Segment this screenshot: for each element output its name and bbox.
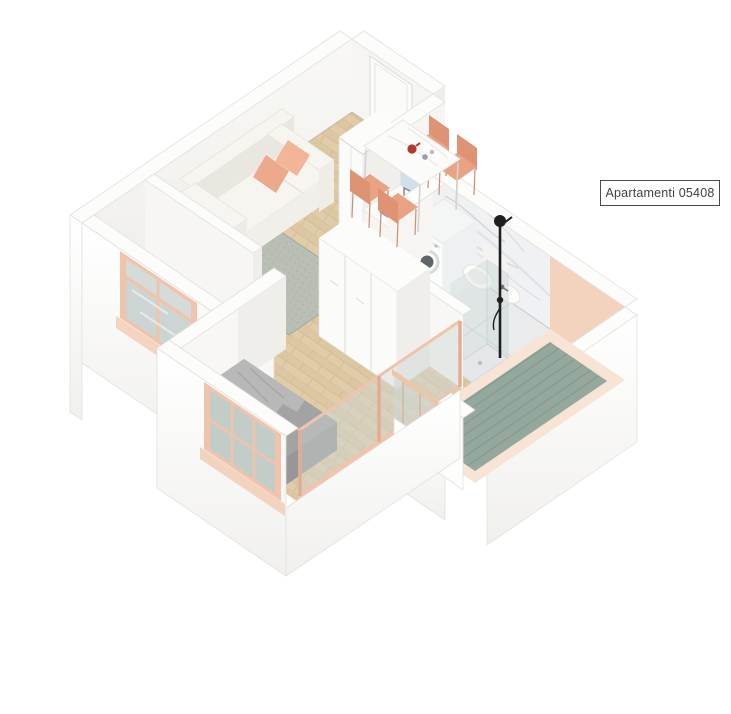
apartment-floorplan[interactable] [70,31,637,576]
shower-glass-front [487,260,508,358]
shower-drain [478,361,482,365]
apartment-render-svg [0,0,731,714]
unit-label: Apartamenti 05408 [600,180,720,206]
cup-2 [430,150,434,154]
shower-head [494,215,506,227]
unit-label-text: Apartamenti 05408 [605,186,714,200]
washer-knob [434,244,437,247]
wall-west-outer-strip [70,215,82,420]
teapot [407,144,416,153]
page: Apartamenti 05408 [0,0,731,714]
cup [422,154,428,160]
shower-mixer [497,297,503,303]
